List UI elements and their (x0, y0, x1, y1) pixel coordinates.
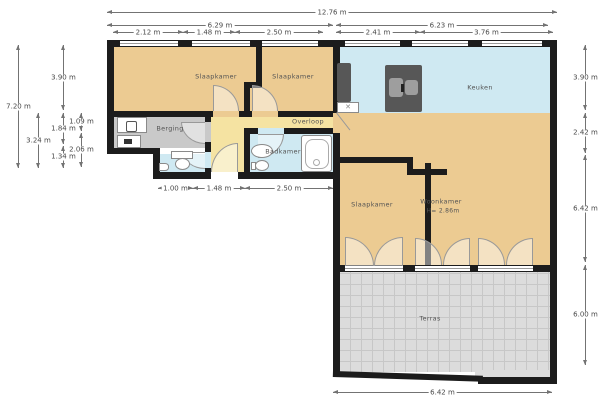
room-label-badkamer: Badkamer (265, 149, 301, 156)
dimension-segment: 3.90 m (585, 45, 586, 110)
faucet-icon (401, 84, 404, 92)
wall (238, 172, 340, 179)
dryer-glyph (124, 139, 132, 144)
window (482, 41, 542, 46)
wall (244, 86, 250, 111)
dimension-segment: 2.42 m (585, 113, 586, 153)
dimension-segment: 1.00 m (158, 188, 193, 189)
room-keuken-floor (340, 47, 550, 113)
terrace-door-window (478, 266, 533, 271)
dimension-top-total: 12.76 m (107, 12, 557, 13)
window (120, 41, 178, 46)
window (345, 41, 400, 46)
dimension-segment: 6.42 m (585, 155, 586, 262)
kitchen-island (385, 65, 422, 112)
room-label-slaapkamer-2: Slaapkamer (272, 74, 314, 81)
wall (256, 47, 262, 86)
dimension-terrace-width: 6.42 m (333, 392, 552, 393)
dimension-segment: 2.06 m (81, 133, 82, 167)
wall (244, 134, 250, 172)
door-opening (205, 152, 211, 168)
kitchen-counter (337, 63, 351, 102)
bathtub-drain (313, 159, 320, 166)
bathtub-icon (301, 135, 332, 172)
wall (333, 371, 483, 382)
stove-icon: ✕ (337, 102, 359, 113)
dimension-segment: 3.90 m (63, 45, 64, 110)
dimension-segment: 3.24 m (38, 113, 39, 168)
room-label-terras: Terras (419, 316, 440, 323)
washing-machine-icon (117, 117, 147, 133)
toilet-icon (255, 160, 269, 171)
room-label-slaapkamer-3: Slaapkamer (351, 202, 393, 209)
floor-plan: ✕ Slaapkamer Slaapkamer Berging Overloop… (0, 0, 600, 400)
door-opening (213, 111, 239, 117)
toilet-icon (175, 158, 190, 170)
sink-bowl-icon (405, 80, 418, 95)
room-label-keuken: Keuken (467, 85, 493, 92)
dimension-segment: 2.50 m (235, 32, 323, 33)
door-opening (252, 111, 278, 117)
window (262, 41, 318, 46)
room-label-overloop: Overloop (292, 119, 324, 126)
dimension-top-left: 6.29 m (107, 25, 333, 26)
room-terras-floor (340, 272, 550, 372)
washer-drum (126, 121, 137, 132)
wall (107, 40, 114, 154)
terrace-door-window (345, 266, 403, 271)
window (412, 41, 468, 46)
hand-basin-icon (159, 163, 169, 171)
room-label-slaapkamer-1: Slaapkamer (195, 74, 237, 81)
room-label-woonkamer: Woonkamer (420, 199, 461, 206)
terrace-door-window (415, 266, 470, 271)
dimension-top-right: 6.23 m (336, 25, 548, 26)
dimension-left-total: 7.20 m (18, 45, 19, 168)
dimension-segment: 2.41 m (336, 32, 420, 33)
wall (550, 40, 557, 382)
room-label-berging: Berging (156, 126, 183, 133)
dimension-terrace-height: 6.00 m (585, 265, 586, 365)
door-opening (205, 122, 211, 142)
window (192, 41, 250, 46)
wall (478, 377, 557, 384)
dimension-segment: 1.48 m (193, 188, 245, 189)
dimension-segment: 1.84 m (63, 113, 64, 144)
dryer-icon (117, 135, 141, 148)
dimension-segment: 1.48 m (183, 32, 235, 33)
room-label-woonkamer-height: H= 2.86m (426, 208, 459, 215)
dimension-segment: 2.12 m (113, 32, 183, 33)
wall (153, 172, 211, 179)
dimension-segment: 1.09 m (81, 113, 82, 131)
dimension-segment: 3.76 m (420, 32, 553, 33)
wall (340, 157, 407, 163)
dimension-segment: 1.34 m (63, 146, 64, 168)
dimension-segment: 2.50 m (245, 188, 333, 189)
wall (333, 133, 340, 375)
